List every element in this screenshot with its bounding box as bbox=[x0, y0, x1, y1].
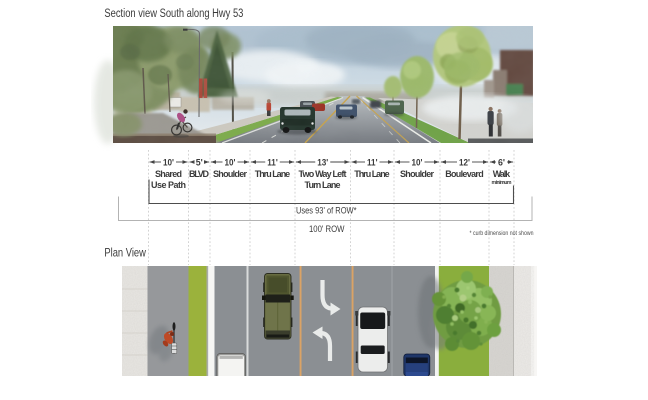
svg-text:11': 11' bbox=[367, 157, 378, 167]
svg-text:Turn Lane: Turn Lane bbox=[305, 180, 341, 190]
svg-text:* curb dimension not shown: * curb dimension not shown bbox=[470, 230, 534, 237]
svg-text:Thru Lane: Thru Lane bbox=[255, 169, 291, 179]
svg-text:5': 5' bbox=[196, 157, 203, 167]
svg-text:Shared: Shared bbox=[155, 169, 182, 179]
svg-text:Walk: Walk bbox=[493, 169, 511, 179]
svg-text:100' ROW: 100' ROW bbox=[309, 224, 345, 234]
svg-text:12': 12' bbox=[459, 157, 470, 167]
svg-text:Section view South along Hwy 5: Section view South along Hwy 53 bbox=[104, 6, 243, 20]
svg-text:6': 6' bbox=[498, 157, 505, 167]
svg-text:10': 10' bbox=[412, 157, 423, 167]
svg-text:10': 10' bbox=[163, 157, 174, 167]
svg-text:Shoulder: Shoulder bbox=[400, 169, 434, 179]
svg-text:Boulevard: Boulevard bbox=[445, 169, 484, 179]
svg-text:Uses 93' of ROW*: Uses 93' of ROW* bbox=[296, 206, 357, 216]
svg-text:Shoulder: Shoulder bbox=[213, 169, 247, 179]
svg-text:10': 10' bbox=[225, 157, 236, 167]
svg-text:BLVD: BLVD bbox=[189, 169, 210, 179]
svg-text:Plan View: Plan View bbox=[104, 246, 146, 260]
svg-text:minimum: minimum bbox=[492, 180, 512, 186]
svg-text:Two Way Left: Two Way Left bbox=[299, 169, 347, 179]
svg-text:Thru Lane: Thru Lane bbox=[354, 169, 390, 179]
svg-text:Use Path: Use Path bbox=[151, 180, 186, 190]
svg-text:11': 11' bbox=[267, 157, 278, 167]
svg-text:13': 13' bbox=[317, 157, 328, 167]
